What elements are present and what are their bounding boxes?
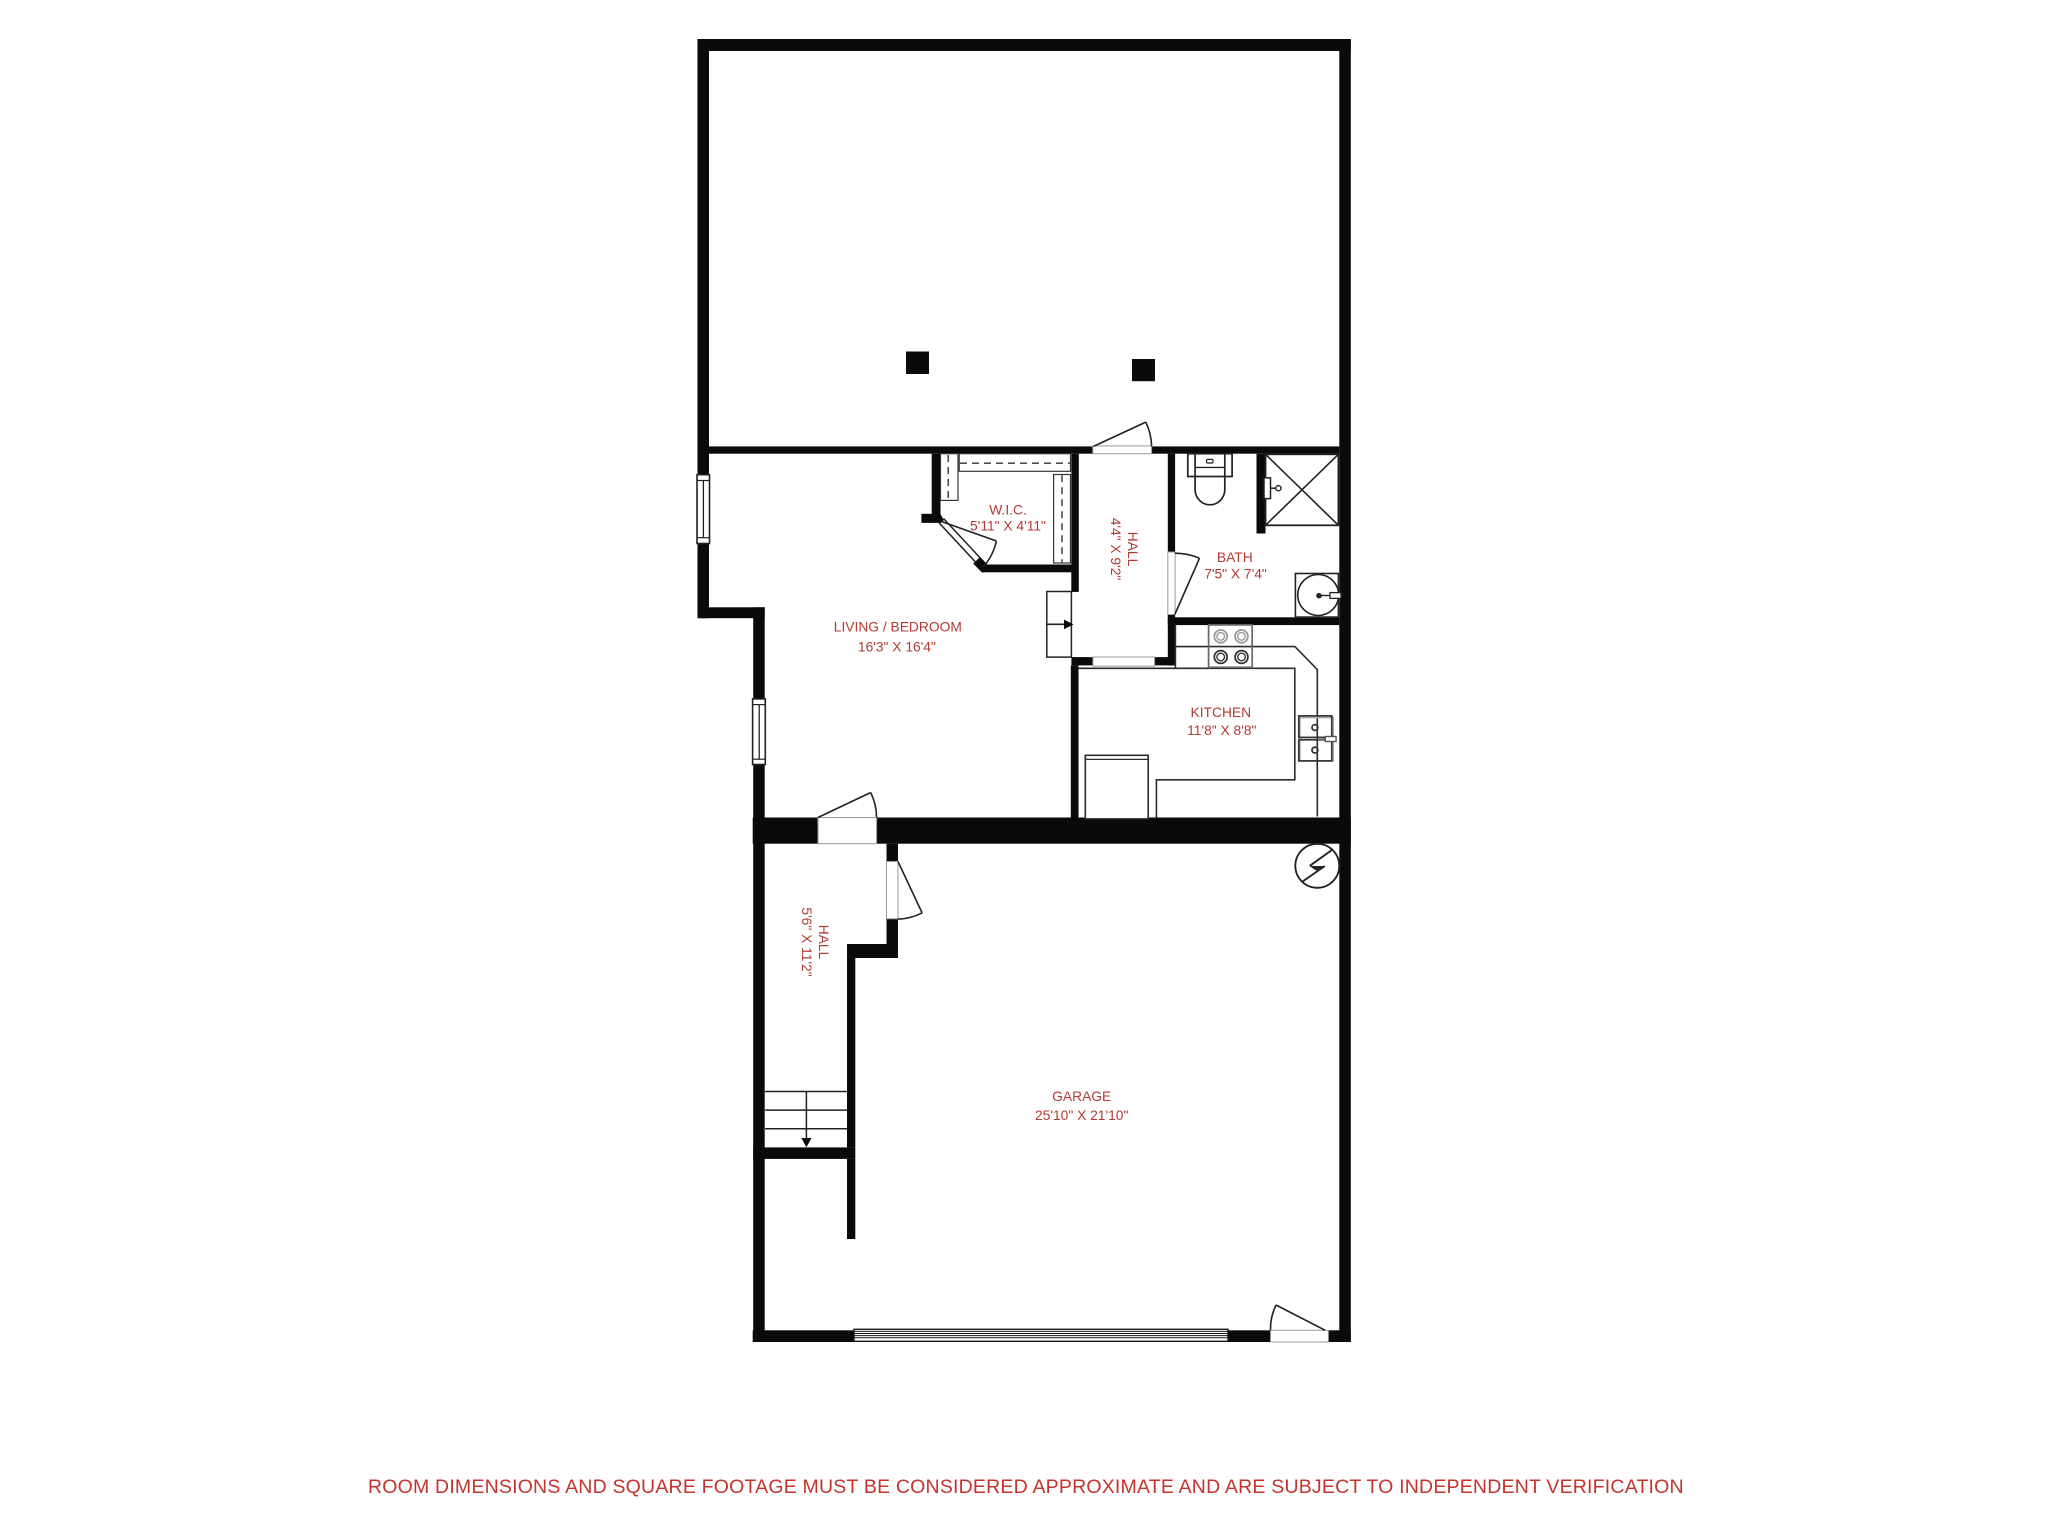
svg-text:ROOM DIMENSIONS AND SQUARE FOO: ROOM DIMENSIONS AND SQUARE FOOTAGE MUST … [368,1476,1684,1498]
svg-text:HALL: HALL [1125,532,1140,567]
svg-text:25'10" X 21'10": 25'10" X 21'10" [1035,1108,1128,1123]
svg-text:BATH: BATH [1217,550,1253,565]
svg-text:5'6" X 11'2": 5'6" X 11'2" [799,907,814,976]
svg-text:HALL: HALL [816,925,831,960]
svg-text:7'5" X 7'4": 7'5" X 7'4" [1204,566,1267,581]
svg-text:W.I.C.: W.I.C. [989,502,1027,517]
svg-text:LIVING / BEDROOM: LIVING / BEDROOM [834,620,962,635]
svg-text:4'4" X 9'2": 4'4" X 9'2" [1108,518,1123,581]
svg-text:KITCHEN: KITCHEN [1191,705,1252,720]
svg-text:11'8" X 8'8": 11'8" X 8'8" [1187,723,1256,738]
svg-text:16'3" X 16'4": 16'3" X 16'4" [858,640,936,655]
svg-text:GARAGE: GARAGE [1052,1089,1111,1104]
svg-text:5'11" X 4'11": 5'11" X 4'11" [970,518,1046,533]
